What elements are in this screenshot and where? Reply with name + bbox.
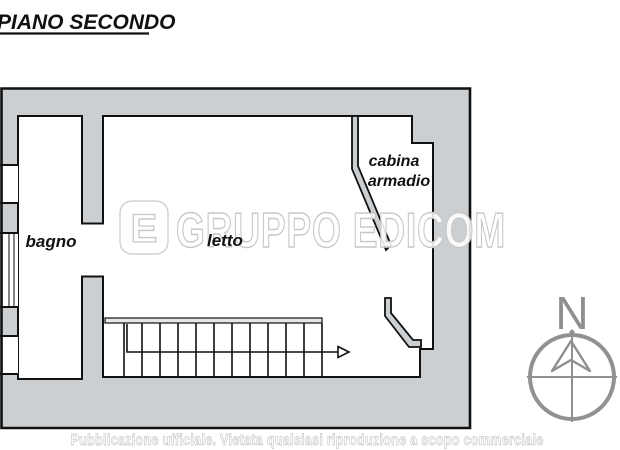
label-cabina-line1: cabina bbox=[369, 153, 420, 170]
floorplan-page: E GRUPPO EDICOM PIANO SECONDO bagno lett… bbox=[0, 0, 620, 450]
watermark: E GRUPPO EDICOM bbox=[120, 201, 506, 258]
label-cabina-line2: armadio bbox=[368, 173, 430, 190]
floorplan-svg: E GRUPPO EDICOM PIANO SECONDO bagno lett… bbox=[0, 0, 620, 450]
label-letto: letto bbox=[207, 231, 243, 250]
page-title: PIANO SECONDO bbox=[0, 11, 176, 34]
footer-disclaimer: Pubblicazione ufficiale. Vietata qualsia… bbox=[71, 432, 544, 449]
floor-plan bbox=[0, 89, 470, 429]
door-gap-bagno bbox=[81, 224, 104, 277]
stair-rail bbox=[105, 318, 322, 323]
compass-rose-icon: N bbox=[527, 287, 617, 422]
label-bagno: bagno bbox=[26, 232, 77, 251]
watermark-logo-letter: E bbox=[131, 207, 158, 251]
